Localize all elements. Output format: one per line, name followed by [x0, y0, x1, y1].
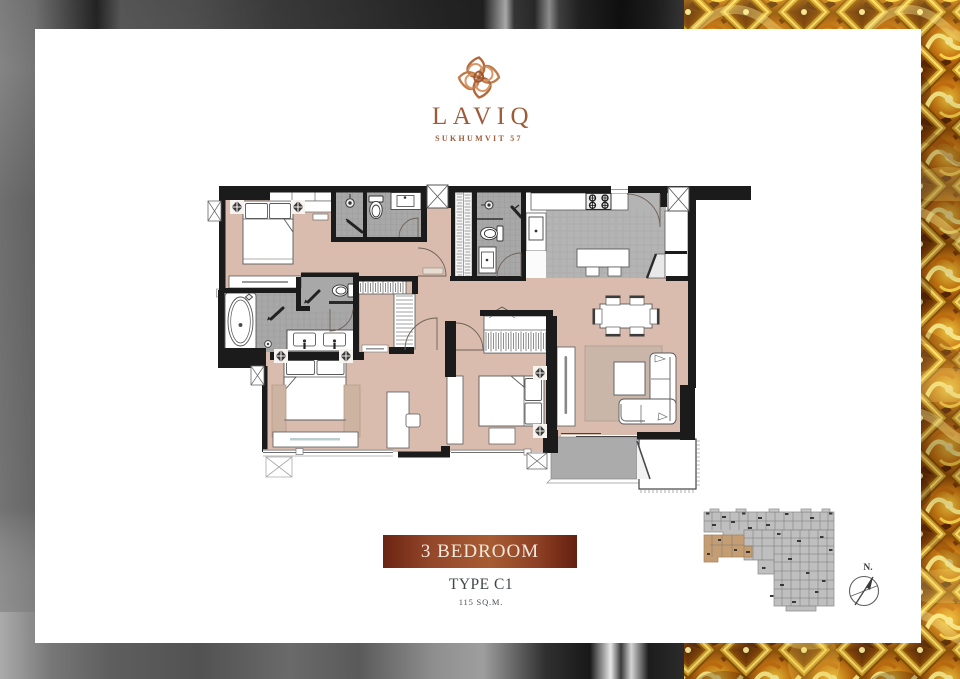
svg-text:LAVIQ: LAVIQ [432, 103, 534, 130]
svg-text:3 BEDROOM: 3 BEDROOM [421, 541, 539, 562]
svg-text:115 SQ.M.: 115 SQ.M. [459, 597, 503, 607]
svg-text:SUKHUMVIT 57: SUKHUMVIT 57 [435, 134, 523, 143]
svg-text:TYPE C1: TYPE C1 [449, 576, 513, 593]
svg-text:N.: N. [863, 563, 872, 573]
